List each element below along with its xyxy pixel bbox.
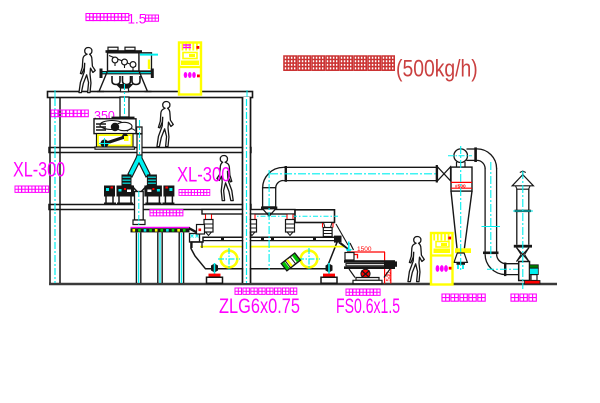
svg-text:1500: 1500: [357, 246, 372, 253]
svg-text:1.5: 1.5: [128, 12, 147, 27]
svg-text:FS0.6x1.5: FS0.6x1.5: [336, 294, 400, 317]
svg-text:(500kg/h): (500kg/h): [396, 54, 478, 82]
svg-text:XL-300: XL-300: [13, 157, 65, 181]
svg-text:XL-300: XL-300: [177, 164, 230, 187]
svg-text:ZLG6x0.75: ZLG6x0.75: [219, 294, 300, 317]
